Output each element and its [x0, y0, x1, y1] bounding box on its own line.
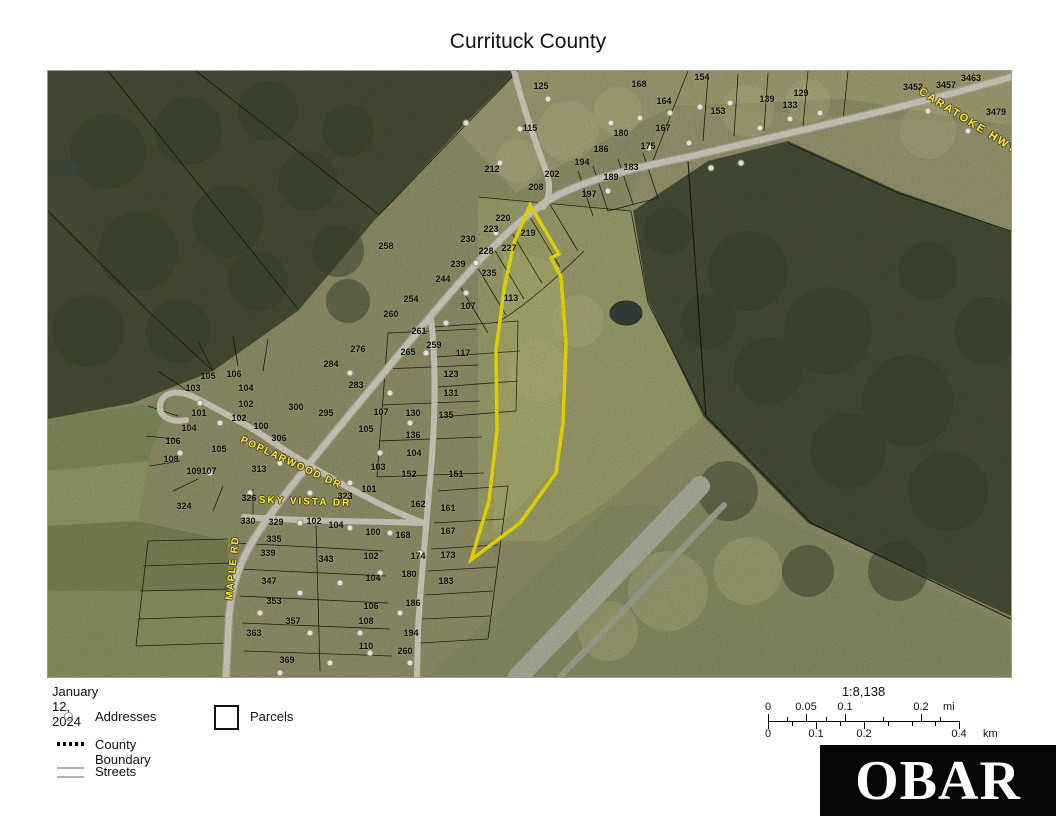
- scale-tick: [935, 722, 936, 726]
- scale-tick: [940, 717, 941, 721]
- scale-mi-label: 0.05: [795, 701, 816, 713]
- street-name-label: SKY VISTA DR: [258, 495, 351, 509]
- scale-tick: [883, 717, 884, 721]
- double-line-icon: [57, 767, 84, 778]
- scale-mi-label: 0.1: [837, 701, 852, 713]
- page-title: Currituck County: [0, 30, 1056, 54]
- parcel-square-icon: [214, 705, 239, 730]
- street-name-label: POPLARWOOD DR: [239, 435, 344, 492]
- scale-km-label: 0.4: [951, 728, 966, 740]
- scale-tick: [840, 722, 841, 726]
- dotted-line-icon: [57, 742, 84, 746]
- scale-tick: [792, 722, 793, 726]
- scale-km-label: 0: [765, 728, 771, 740]
- scale-tick: [768, 714, 769, 721]
- map-date: January 12, 2024: [52, 684, 98, 729]
- street-labels-layer: CARATOKE HWYPOPLARWOOD DRSKY VISTA DRMAP…: [48, 71, 1011, 677]
- scale-tick: [864, 722, 865, 729]
- scale-tick: [816, 722, 817, 729]
- obar-logo: OBAR: [820, 745, 1056, 816]
- street-name-label: CARATOKE HWY: [916, 86, 1012, 157]
- obar-logo-text: OBAR: [855, 753, 1021, 809]
- legend-item-addresses: Addresses: [95, 709, 156, 724]
- scale-tick: [768, 722, 769, 729]
- scale-km-label: 0.1: [808, 728, 823, 740]
- scale-tick: [888, 722, 889, 726]
- legend-item-streets: Streets: [95, 764, 136, 779]
- legend-item-parcels: Parcels: [250, 709, 293, 724]
- scale-tick: [921, 714, 922, 721]
- scale-tick: [806, 714, 807, 721]
- scale-km-unit: km: [983, 728, 998, 740]
- scale-ratio: 1:8,138: [768, 684, 959, 699]
- scale-tick: [959, 722, 960, 729]
- street-name-label: MAPLE RD: [224, 535, 242, 600]
- map-canvas: 1251681641541531391331291151801671861751…: [47, 70, 1012, 678]
- legend-item-county-boundary: County Boundary: [95, 737, 151, 767]
- scale-mi-label: 0.2: [913, 701, 928, 713]
- scale-tick: [912, 722, 913, 726]
- scale-bar: 1:8,138 00.050.10.2mi00.10.20.4km: [768, 684, 1008, 744]
- address-circle-icon: [64, 712, 73, 721]
- scale-tick: [845, 714, 846, 721]
- scale-km-label: 0.2: [856, 728, 871, 740]
- scale-mi-unit: mi: [943, 701, 955, 713]
- scale-tick: [826, 717, 827, 721]
- scale-tick: [787, 717, 788, 721]
- scale-mi-label: 0: [765, 701, 771, 713]
